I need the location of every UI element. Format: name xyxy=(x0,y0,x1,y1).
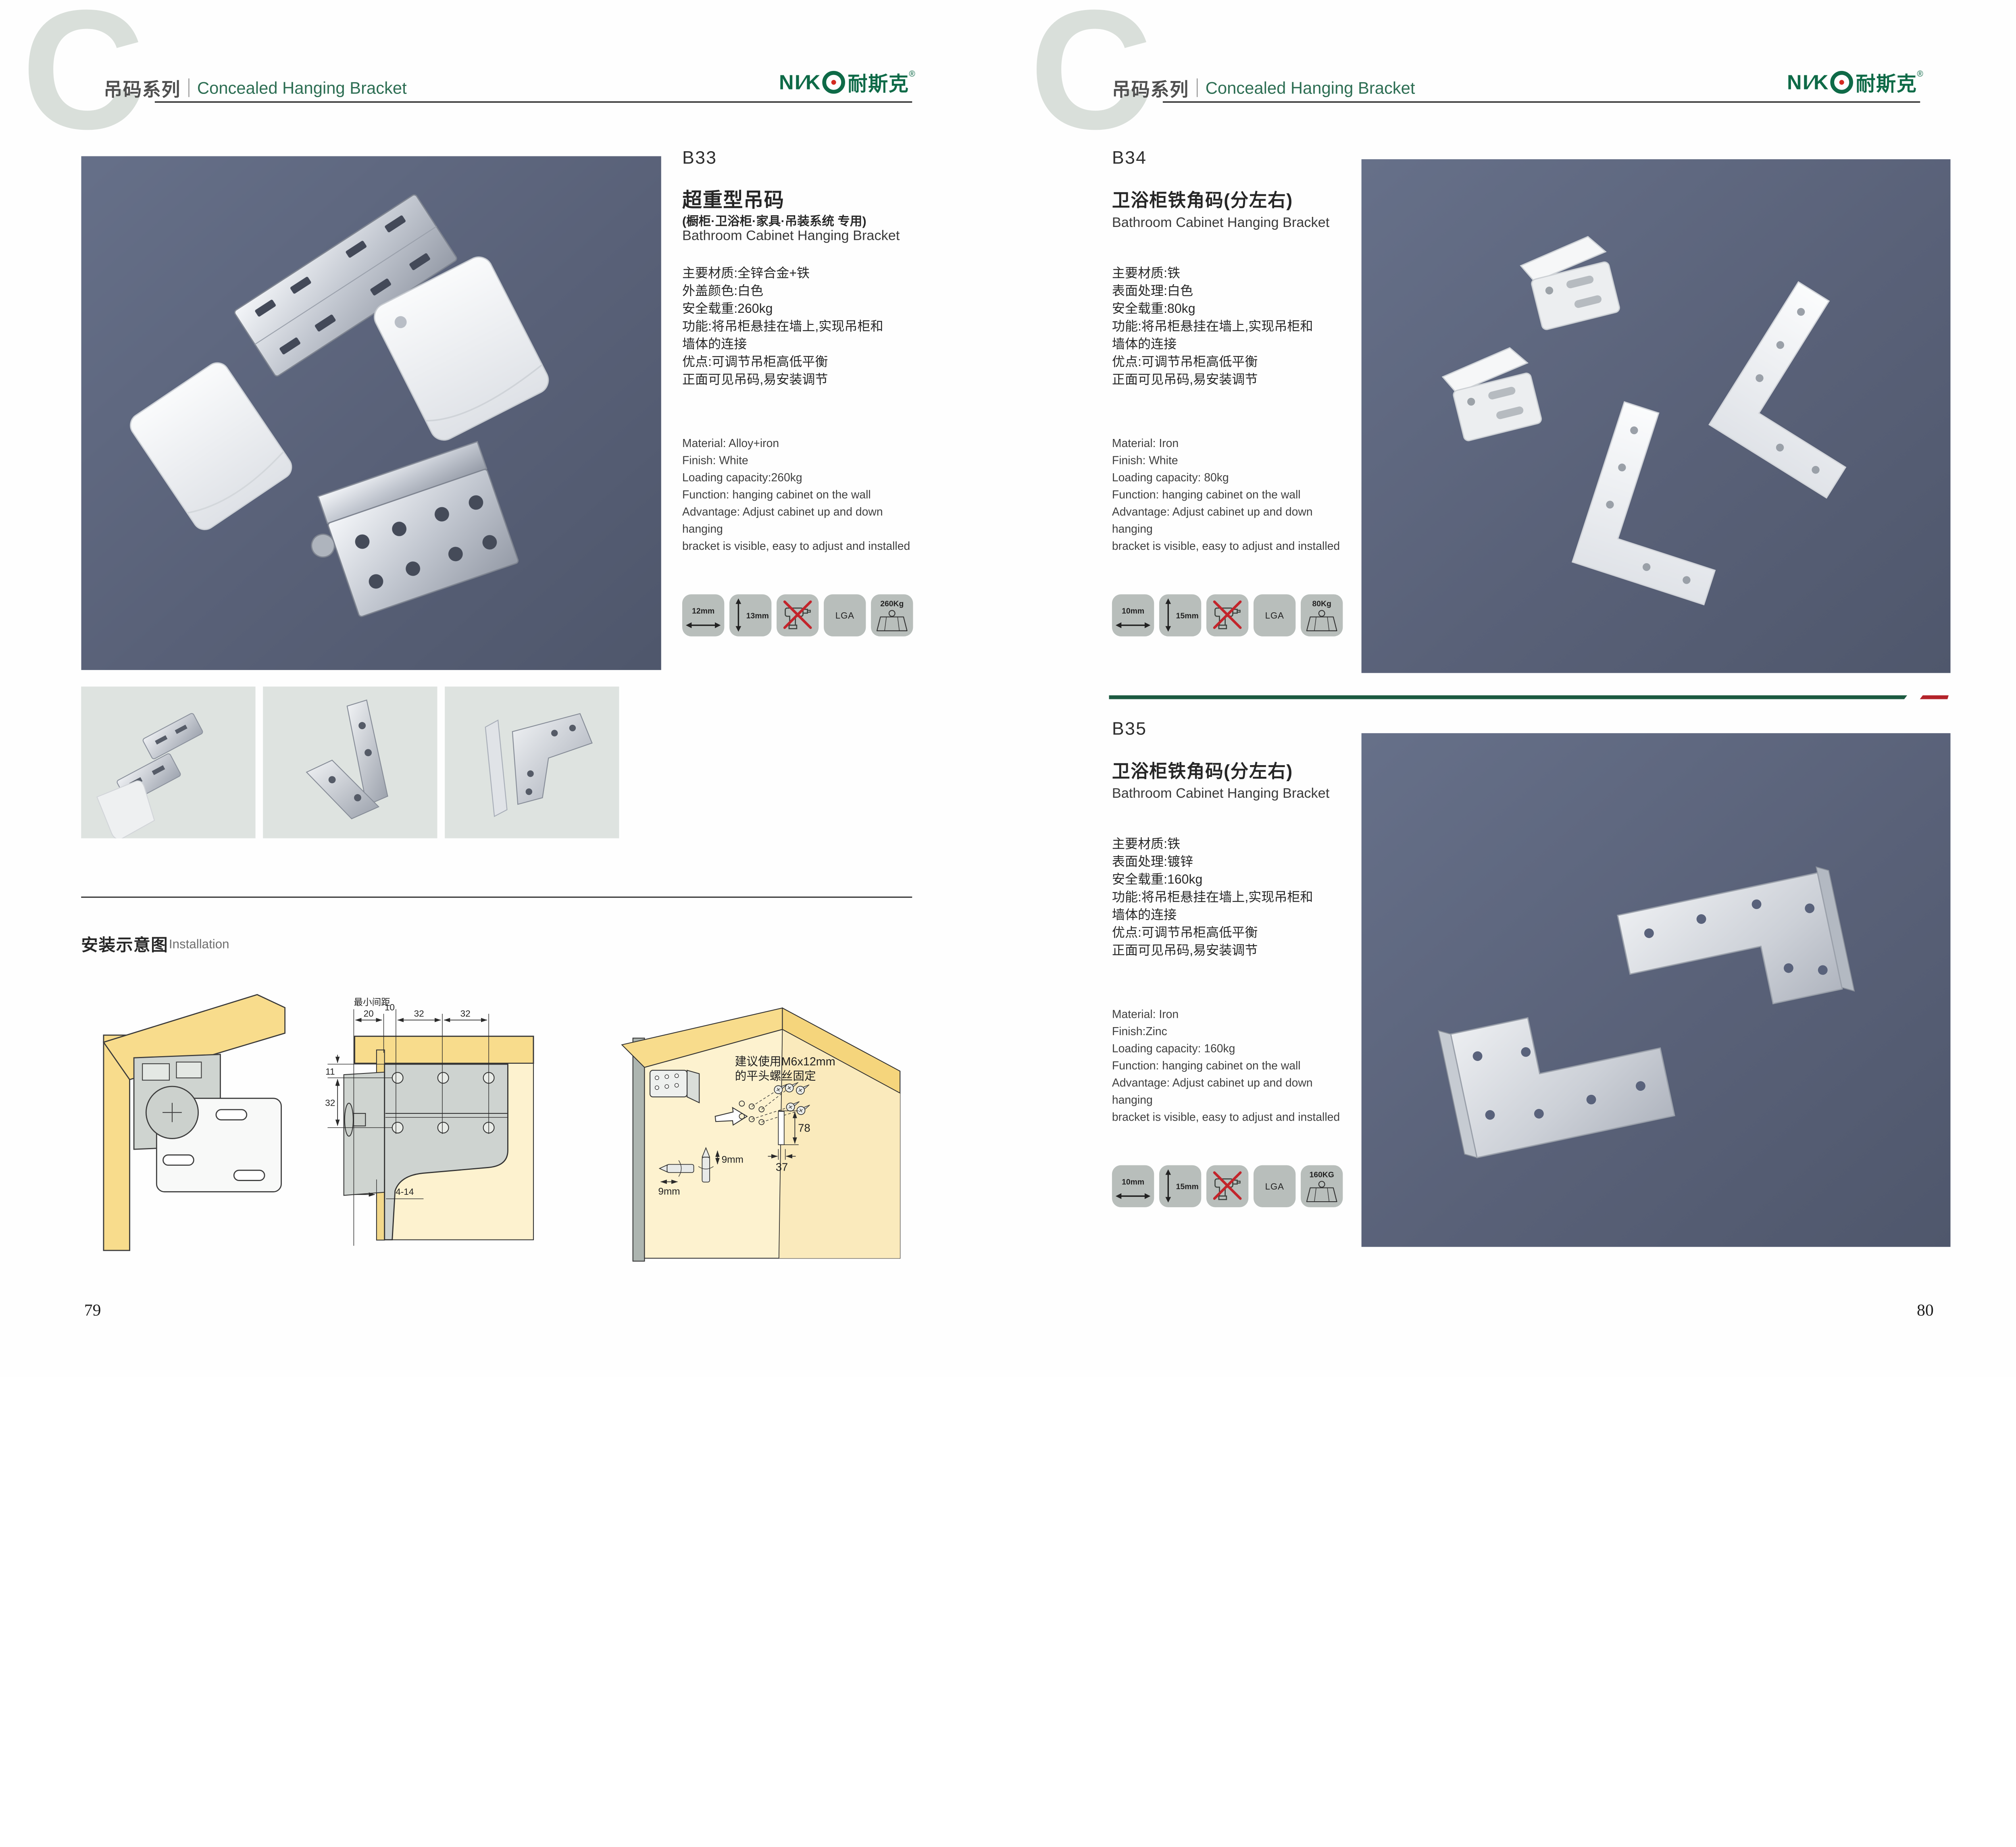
brand-logo-red-dot xyxy=(1839,80,1844,85)
lga-certification-icon: LGA xyxy=(1254,594,1295,636)
vertical-arrow-icon xyxy=(735,598,742,632)
spec-line: 安全载重:260kg xyxy=(682,300,920,318)
brand-logo-red-dot xyxy=(831,80,836,85)
installation-heading-cn: 安装示意图 xyxy=(81,932,168,956)
drilling-height-icon: 13mm xyxy=(729,594,771,636)
drilling-width-icon: 10mm xyxy=(1112,1165,1154,1207)
spec-line: Loading capacity:260kg xyxy=(682,469,920,486)
product-specs-cn: 主要材质:全锌合金+铁 外盖颜色:白色 安全载重:260kg 功能:将吊柜悬挂在… xyxy=(682,264,920,389)
series-title-cn: 吊码系列 xyxy=(1112,74,1189,101)
product-subtitle-cn: (橱柜·卫浴柜·家具·吊装系统 专用) xyxy=(682,211,866,229)
product-title-en: Bathroom Cabinet Hanging Bracket xyxy=(1112,214,1329,230)
installation-heading-en: Installation xyxy=(169,937,229,951)
note-line-1: 建议使用M6x12mm xyxy=(735,1055,835,1068)
b33-thumbnail-1 xyxy=(81,686,255,838)
brand-logo-text-cn: 耐斯克 xyxy=(1856,68,1917,97)
spec-line: Finish:Zinc xyxy=(1112,1023,1350,1040)
drilling-width-icon: 10mm xyxy=(1112,594,1154,636)
spec-line: 主要材质:铁 xyxy=(1112,264,1350,282)
b35-icon-row: 10mm 15mm LGA xyxy=(1112,1165,1343,1207)
spec-line: 表面处理:白色 xyxy=(1112,282,1350,300)
product-code: B35 xyxy=(1112,718,1147,738)
brand-logo-text-en: NI∕K xyxy=(1787,71,1829,94)
spec-line: bracket is visible, easy to adjust and i… xyxy=(1112,538,1350,555)
spec-line: Function: hanging cabinet on the wall xyxy=(682,487,920,503)
dim-32a: 32 xyxy=(414,1009,424,1019)
registered-mark: ® xyxy=(909,69,915,79)
b34-icon-row: 10mm 15mm LGA xyxy=(1112,594,1343,636)
installation-rule xyxy=(81,896,912,898)
cert-label: LGA xyxy=(1254,1182,1295,1192)
loading-capacity-icon: 80Kg xyxy=(1301,594,1343,636)
dim-4-14: 4-14 xyxy=(396,1187,414,1197)
installation-diagram-3: 建议使用M6x12mm 的平头螺丝固定 78 37 9mm 9mm xyxy=(591,982,915,1272)
spec-line: 正面可见吊码,易安装调节 xyxy=(682,371,920,389)
registered-mark: ® xyxy=(1917,69,1923,79)
catalog-spread: C 吊码系列 Concealed Hanging Bracket NI∕K 耐斯… xyxy=(0,0,2016,1377)
brand-logo-o-icon xyxy=(823,71,846,94)
product-title-cn: 超重型吊码 xyxy=(682,184,784,213)
loading-capacity-icon: 160KG xyxy=(1301,1165,1343,1207)
no-drill-icon xyxy=(777,594,818,636)
product-title-en: Bathroom Cabinet Hanging Bracket xyxy=(1112,785,1329,801)
series-title-en: Concealed Hanging Bracket xyxy=(197,78,407,97)
loading-capacity-icon: 260Kg xyxy=(871,594,913,636)
spec-line: 主要材质:铁 xyxy=(1112,835,1350,853)
product-specs-en: Material: Iron Finish: White Loading cap… xyxy=(1112,435,1350,555)
spec-line: 功能:将吊柜悬挂在墙上,实现吊柜和 xyxy=(1112,318,1350,335)
header-title-divider xyxy=(1197,79,1198,97)
spec-line: 表面处理:镀锌 xyxy=(1112,853,1350,871)
b33-icon-row: 12mm 13mm xyxy=(682,594,913,636)
dim-9mm-b: 9mm xyxy=(722,1154,744,1165)
spec-line: Material: Iron xyxy=(1112,435,1350,452)
page-number-right: 80 xyxy=(1917,1300,1934,1320)
load-value: 80Kg xyxy=(1301,599,1343,608)
height-value: 15mm xyxy=(1176,611,1199,620)
b33-product-photo xyxy=(81,156,661,670)
spec-line: 功能:将吊柜悬挂在墙上,实现吊柜和 xyxy=(682,318,920,335)
spec-line: Advantage: Adjust cabinet up and down ha… xyxy=(1112,503,1350,538)
brand-logo-text-en: NI∕K xyxy=(779,71,821,94)
spec-line: 安全载重:160kg xyxy=(1112,871,1350,888)
spec-line: 优点:可调节吊柜高低平衡 xyxy=(1112,924,1350,942)
header-title-divider xyxy=(188,79,189,97)
product-specs-cn: 主要材质:铁 表面处理:白色 安全载重:80kg 功能:将吊柜悬挂在墙上,实现吊… xyxy=(1112,264,1350,389)
no-drill-icon xyxy=(1206,594,1248,636)
drilling-width-icon: 12mm xyxy=(682,594,724,636)
dim-11: 11 xyxy=(325,1067,335,1077)
section-divider-red xyxy=(1920,695,1949,699)
dim-9mm-a: 9mm xyxy=(658,1186,680,1197)
brand-logo-text-cn: 耐斯克 xyxy=(848,68,909,97)
b33-thumbnail-3 xyxy=(445,686,619,838)
vertical-arrow-icon xyxy=(1164,598,1172,632)
lga-certification-icon: LGA xyxy=(824,594,866,636)
load-value: 260Kg xyxy=(871,599,913,608)
dim-32b: 32 xyxy=(460,1009,471,1019)
height-value: 13mm xyxy=(746,611,769,620)
spec-line: 墙体的连接 xyxy=(682,335,920,353)
b35-product-photo xyxy=(1362,733,1951,1247)
vertical-arrow-icon xyxy=(1164,1169,1172,1203)
spec-line: Advantage: Adjust cabinet up and down ha… xyxy=(682,503,920,538)
spec-line: 优点:可调节吊柜高低平衡 xyxy=(1112,353,1350,371)
b33-thumbnail-2 xyxy=(263,686,437,838)
spec-line: Finish: White xyxy=(1112,452,1350,469)
horizontal-arrow-icon xyxy=(1116,621,1150,629)
spec-line: 功能:将吊柜悬挂在墙上,实现吊柜和 xyxy=(1112,888,1350,906)
spec-line: 正面可见吊码,易安装调节 xyxy=(1112,371,1350,389)
product-title-cn: 卫浴柜铁角码(分左右) xyxy=(1112,757,1293,783)
no-drill-icon xyxy=(1206,1165,1248,1207)
weight-icon xyxy=(1306,609,1338,633)
load-value: 160KG xyxy=(1301,1170,1343,1179)
installation-diagram-1 xyxy=(87,986,285,1255)
spec-line: Loading capacity: 160kg xyxy=(1112,1040,1350,1057)
spec-line: Finish: White xyxy=(682,452,920,469)
width-value: 12mm xyxy=(682,606,724,616)
weight-icon xyxy=(1306,1180,1338,1204)
spec-line: bracket is visible, easy to adjust and i… xyxy=(1112,1109,1350,1125)
page-left: C 吊码系列 Concealed Hanging Bracket NI∕K 耐斯… xyxy=(0,0,1008,1377)
header-rule xyxy=(1163,101,1920,103)
series-title-en: Concealed Hanging Bracket xyxy=(1206,78,1415,97)
spec-line: 安全载重:80kg xyxy=(1112,300,1350,318)
cert-label: LGA xyxy=(824,611,866,621)
spec-line: Loading capacity: 80kg xyxy=(1112,469,1350,486)
section-divider-green xyxy=(1109,695,1907,699)
spec-line: 正面可见吊码,易安装调节 xyxy=(1112,942,1350,959)
dim-20: 20 xyxy=(364,1009,374,1019)
header-rule xyxy=(155,101,912,103)
width-value: 10mm xyxy=(1112,1177,1154,1186)
height-value: 15mm xyxy=(1176,1182,1199,1191)
page-header: 吊码系列 Concealed Hanging Bracket xyxy=(1112,76,1415,100)
drilling-height-icon: 15mm xyxy=(1159,1165,1201,1207)
product-code: B33 xyxy=(682,147,717,168)
product-title-en: Bathroom Cabinet Hanging Bracket xyxy=(682,227,900,243)
spec-line: Function: hanging cabinet on the wall xyxy=(1112,1057,1350,1074)
spec-line: 墙体的连接 xyxy=(1112,906,1350,924)
product-specs-en: Material: Iron Finish:Zinc Loading capac… xyxy=(1112,1006,1350,1126)
spec-line: bracket is visible, easy to adjust and i… xyxy=(682,538,920,555)
horizontal-arrow-icon xyxy=(1116,1192,1150,1200)
width-value: 10mm xyxy=(1112,606,1154,616)
lga-certification-icon: LGA xyxy=(1254,1165,1295,1207)
b34-product-photo xyxy=(1362,159,1951,673)
spec-line: Material: Iron xyxy=(1112,1006,1350,1023)
spec-line: 主要材质:全锌合金+铁 xyxy=(682,264,920,282)
page-number-left: 79 xyxy=(84,1300,101,1320)
crossed-drill-icon xyxy=(1210,598,1245,632)
page-header: 吊码系列 Concealed Hanging Bracket xyxy=(104,76,407,100)
product-code: B34 xyxy=(1112,147,1147,168)
drilling-height-icon: 15mm xyxy=(1159,594,1201,636)
cert-label: LGA xyxy=(1254,611,1295,621)
weight-icon xyxy=(876,609,908,633)
dim-32c: 32 xyxy=(325,1098,335,1108)
dim-78: 78 xyxy=(798,1121,810,1134)
spec-line: Material: Alloy+iron xyxy=(682,435,920,452)
note-line-2: 的平头螺丝固定 xyxy=(735,1070,816,1083)
brand-logo: NI∕K 耐斯克 ® xyxy=(1787,69,1923,96)
spec-line: Function: hanging cabinet on the wall xyxy=(1112,487,1350,503)
horizontal-arrow-icon xyxy=(686,621,721,629)
series-title-cn: 吊码系列 xyxy=(104,74,181,101)
product-specs-en: Material: Alloy+iron Finish: White Loadi… xyxy=(682,435,920,555)
brand-logo-o-icon xyxy=(1831,71,1854,94)
installation-diagram-2: 最小间距 20 10 32 32 11 32 4-14 xyxy=(300,992,571,1248)
product-specs-cn: 主要材质:铁 表面处理:镀锌 安全载重:160kg 功能:将吊柜悬挂在墙上,实现… xyxy=(1112,835,1350,959)
crossed-drill-icon xyxy=(780,598,815,632)
dim-37: 37 xyxy=(776,1161,788,1173)
dim-10: 10 xyxy=(385,1002,395,1012)
brand-logo: NI∕K 耐斯克 ® xyxy=(779,69,915,96)
spec-line: 墙体的连接 xyxy=(1112,335,1350,353)
product-title-cn: 卫浴柜铁角码(分左右) xyxy=(1112,186,1293,212)
thumbnail-2-drawing xyxy=(263,686,437,838)
thumbnail-3-drawing xyxy=(445,686,619,838)
spec-line: 优点:可调节吊柜高低平衡 xyxy=(682,353,920,371)
thumbnail-1-drawing xyxy=(81,686,255,838)
crossed-drill-icon xyxy=(1210,1169,1245,1204)
spec-line: Advantage: Adjust cabinet up and down ha… xyxy=(1112,1074,1350,1109)
spec-line: 外盖颜色:白色 xyxy=(682,282,920,300)
